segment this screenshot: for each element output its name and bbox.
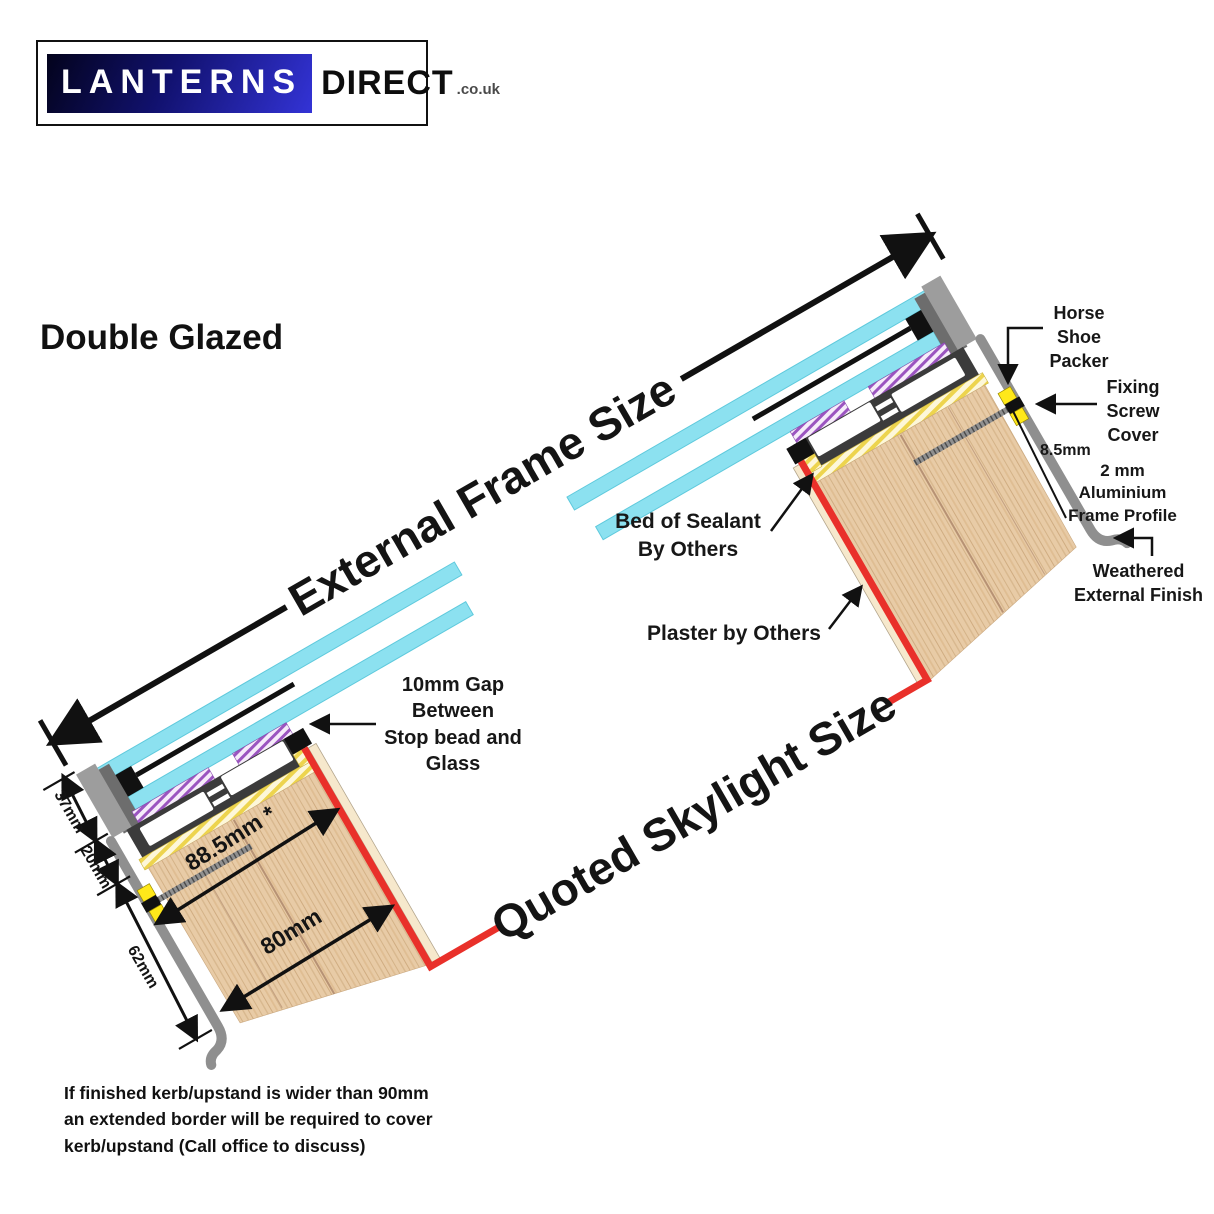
logo-right: DIRECT .co.uk [321,64,500,103]
lanterns-direct-logo: LANTERNS DIRECT .co.uk [36,40,428,126]
dimension-kerb-cover: 62mm [124,943,162,992]
logo-secondary: DIRECT [321,64,454,103]
dimension-profile-offset: 8.5mm [1040,440,1112,461]
label-gap-10mm: 10mm Gap Between Stop bead and Glass [374,672,532,778]
external-frame-size-label: External Frame Size [280,362,685,626]
label-horse-shoe-packer: Horse Shoe Packer [1033,302,1125,373]
label-fixing-screw-cover: Fixing Screw Cover [1094,376,1172,447]
label-weathered-external-finish: Weathered External Finish [1056,560,1214,608]
logo-tld: .co.uk [457,81,500,98]
left-frame-section [52,558,625,1088]
label-plaster-by-others: Plaster by Others [634,620,834,648]
quoted-skylight-size-label: Quoted Skylight Size [482,677,904,951]
label-aluminium-frame-profile: 2 mm Aluminium Frame Profile [1050,460,1195,527]
logo-primary: LANTERNS [47,54,312,113]
page-title: Double Glazed [40,318,283,358]
label-bed-of-sealant: Bed of Sealant By Others [588,508,788,563]
kerb-width-note: If finished kerb/upstand is wider than 9… [64,1080,484,1159]
skylight-cross-section-diagram: External Frame Size Quoted Skylight Size… [0,0,1214,1214]
skylight-cross-section-page: External Frame Size Quoted Skylight Size… [0,0,1214,1214]
